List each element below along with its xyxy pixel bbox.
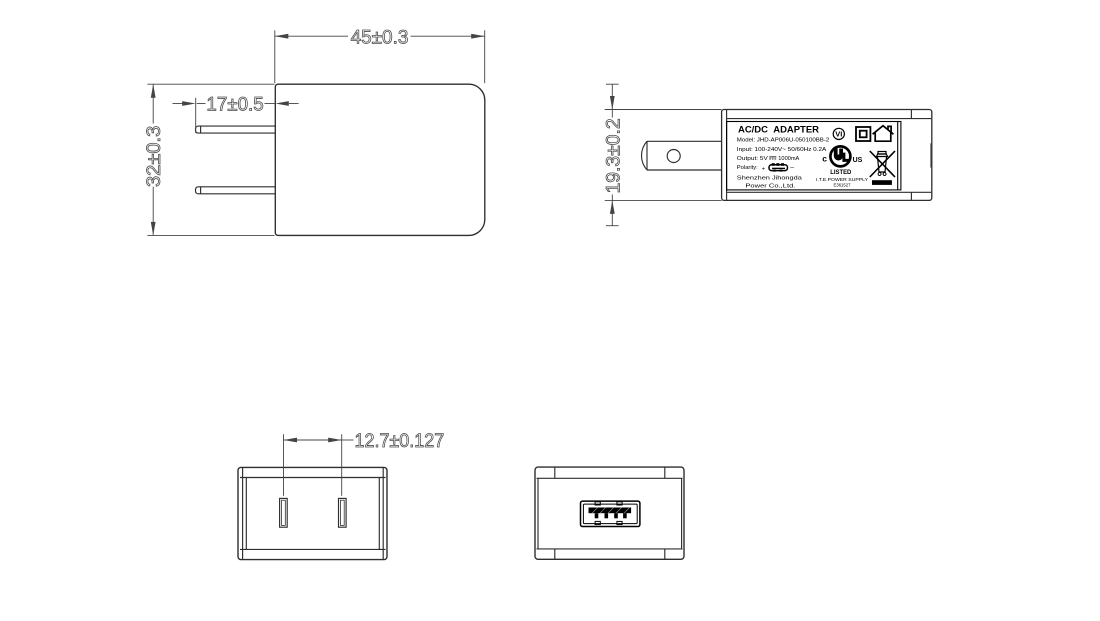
svg-text:–: – [790,165,794,172]
svg-text:+: + [762,166,765,172]
svg-text:Input: 100-240V~ 50/60Hz 0.2: Input: 100-240V~ 50/60Hz 0.2A [737,147,827,153]
svg-text:1000mA: 1000mA [778,156,799,162]
svg-text:LISTED: LISTED [830,169,851,176]
svg-text:45±0.3: 45±0.3 [351,27,409,49]
svg-text:Model: JHD-AP006U-050100BB-2: Model: JHD-AP006U-050100BB-2 [737,138,830,144]
svg-text:12.7±0.127: 12.7±0.127 [355,430,445,452]
svg-text:Output: 5V: Output: 5V [737,156,768,162]
svg-text:Power Co.,Ltd.: Power Co.,Ltd. [745,184,796,190]
svg-text:Shenzhen Jihongda: Shenzhen Jihongda [737,175,803,181]
svg-text:VI: VI [835,130,842,139]
svg-text:32±0.3: 32±0.3 [143,126,165,187]
svg-text:AC/DC ADAPTER: AC/DC ADAPTER [738,125,820,135]
svg-text:Polarity:: Polarity: [737,165,758,171]
svg-text:E361527: E361527 [834,182,851,187]
svg-text:17±0.5: 17±0.5 [206,93,263,115]
svg-text:US: US [853,157,863,164]
svg-text:19.3±0.2: 19.3±0.2 [603,118,625,193]
svg-text:c: c [822,154,827,164]
